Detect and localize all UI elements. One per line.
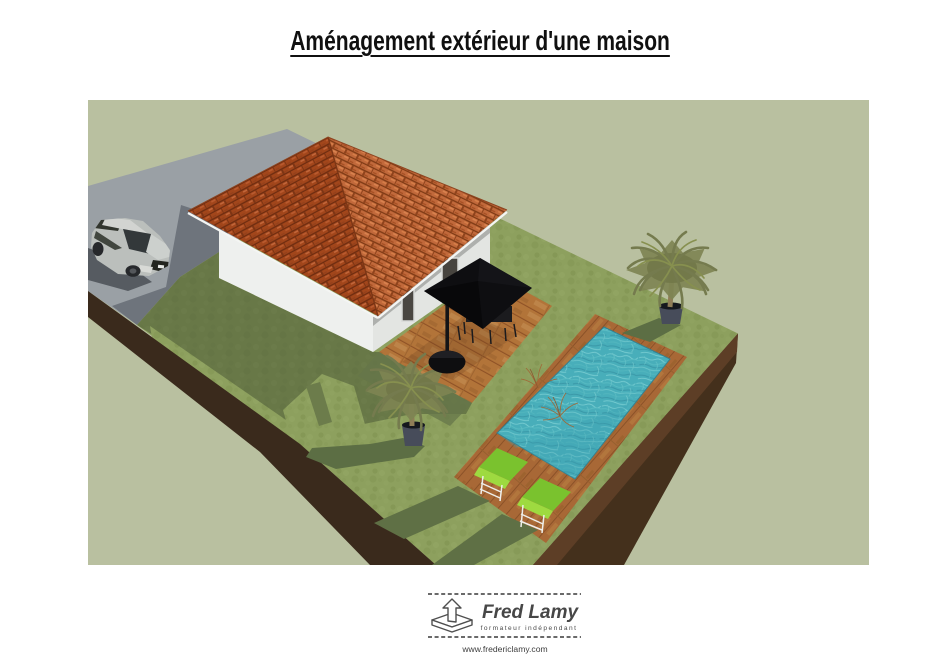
svg-text:www.fredericlamy.com: www.fredericlamy.com xyxy=(461,644,547,654)
svg-text:Fred Lamy: Fred Lamy xyxy=(482,602,580,623)
svg-text:formateur indépendant: formateur indépendant xyxy=(481,625,578,632)
